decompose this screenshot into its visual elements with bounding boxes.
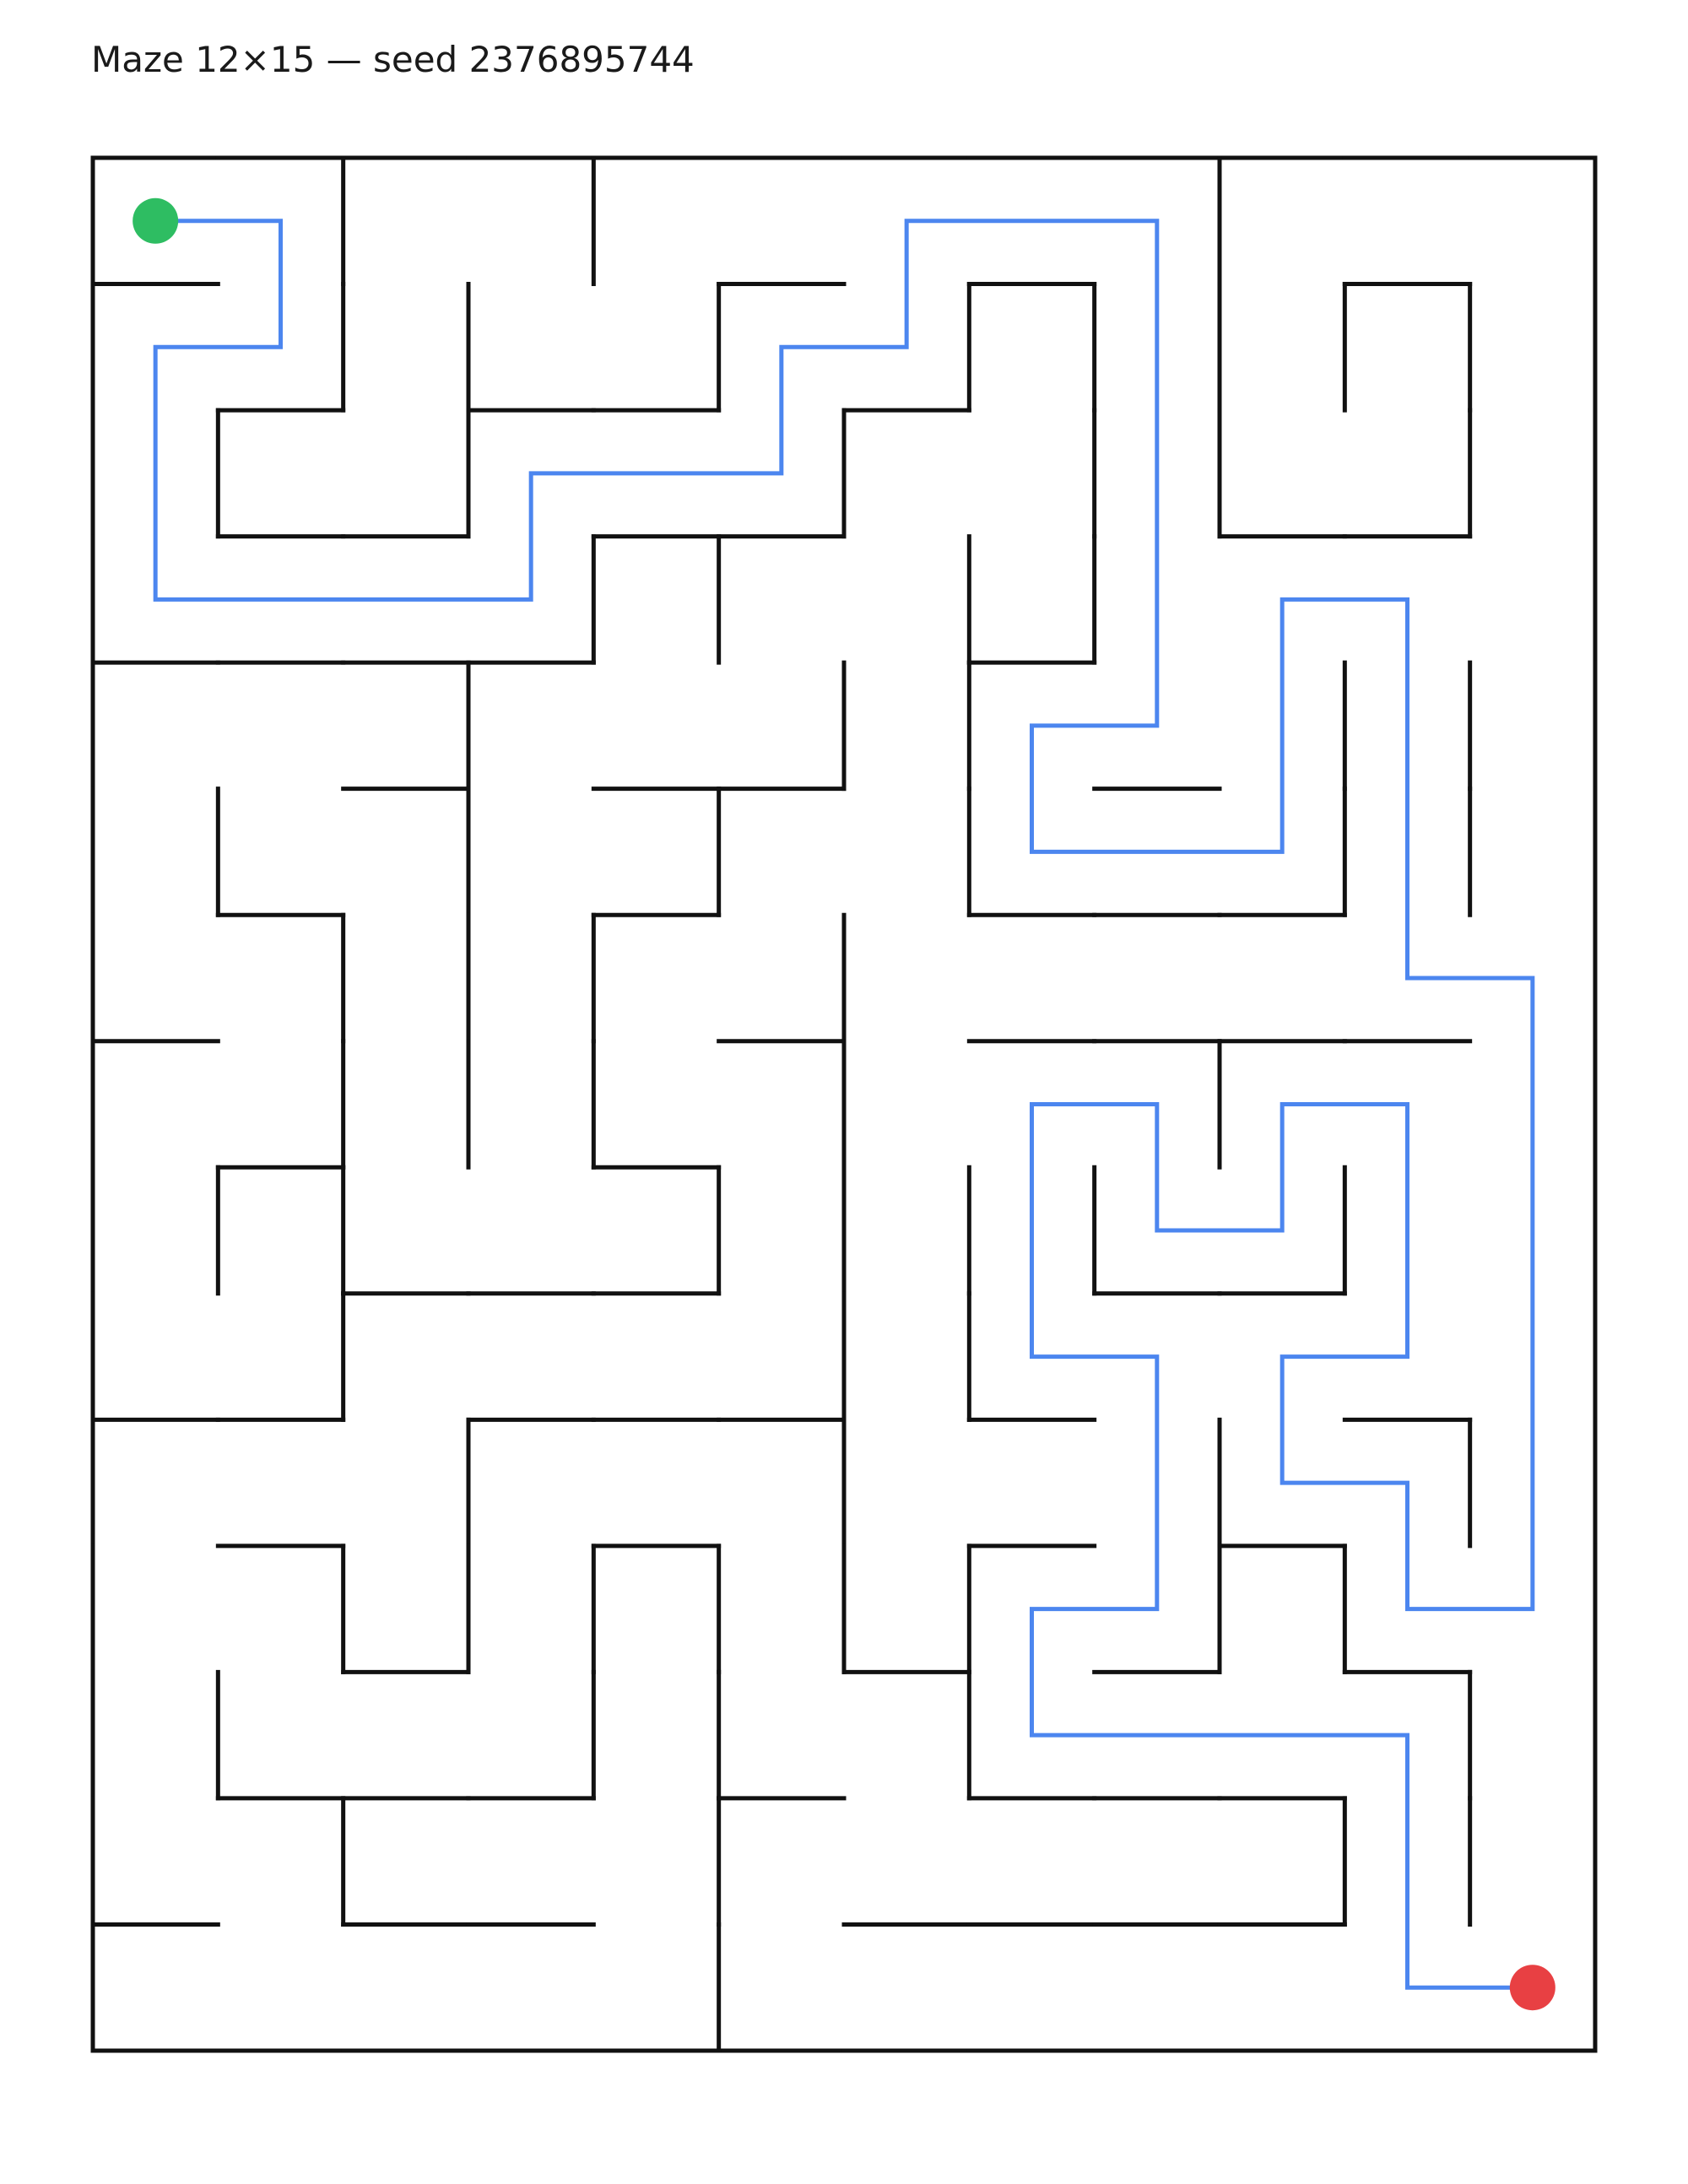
maze-page: Maze 12×15 — seed 2376895744	[0, 0, 1688, 2184]
end-dot	[1510, 1965, 1555, 2010]
maze-svg	[0, 0, 1688, 2184]
start-dot	[133, 198, 178, 244]
